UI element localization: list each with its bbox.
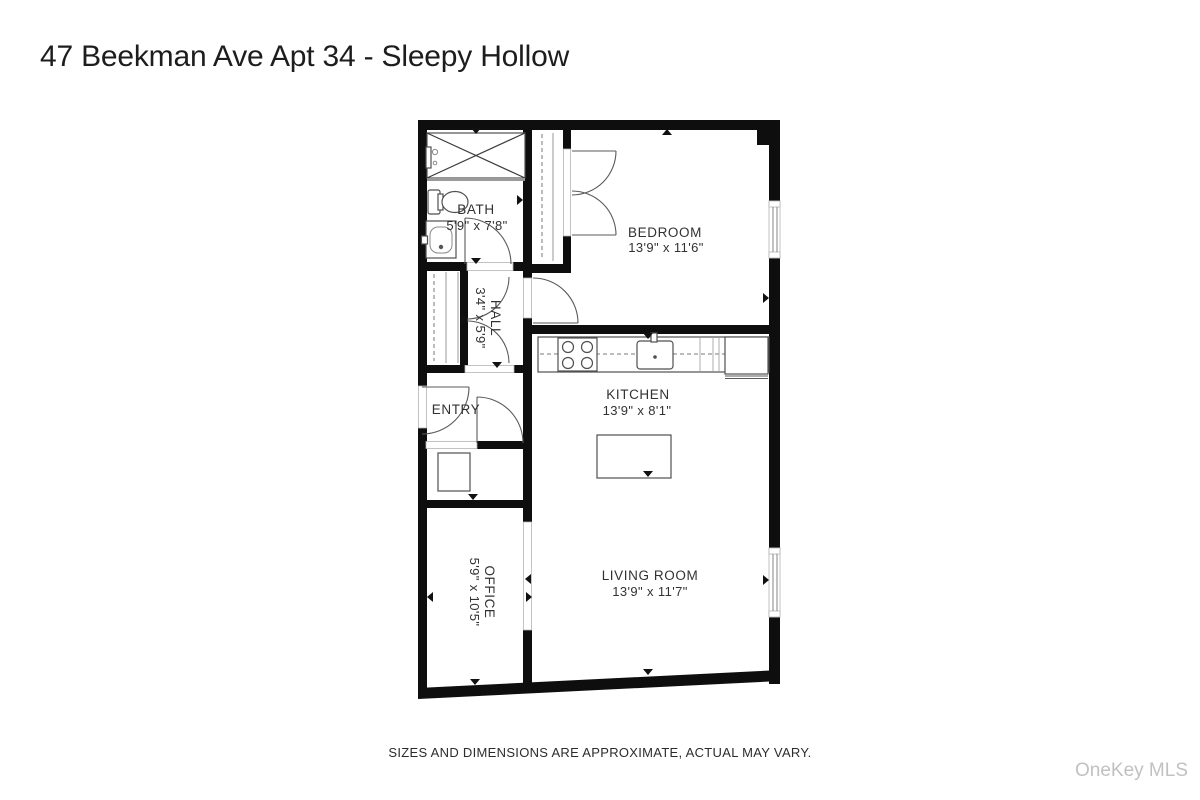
- wall-spine-c: [523, 630, 532, 685]
- faucet: [422, 236, 428, 244]
- window-cap: [769, 548, 780, 554]
- living-room-window: [769, 548, 780, 617]
- office-label: OFFICE: [482, 565, 497, 618]
- bedroom-closet: [542, 133, 553, 261]
- office-label-group: OFFICE 5'9" x 10'5": [467, 558, 497, 627]
- watermark: OneKey MLS: [1075, 760, 1188, 782]
- stove: [558, 338, 597, 371]
- bath-label: BATH: [457, 202, 494, 217]
- wall-closet-right-lower: [563, 236, 571, 264]
- faucet: [651, 333, 657, 342]
- kitchen-dims: 13'9" x 8'1": [603, 403, 672, 418]
- wall-hall-bottom-right: [514, 365, 532, 373]
- hall-dims: 3'4" x 5'9": [473, 287, 488, 348]
- bedroom-door-opening: [524, 278, 532, 318]
- kitchen-island: [597, 435, 671, 478]
- floor-plan-page: 47 Beekman Ave Apt 34 - Sleepy Hollow: [0, 0, 1200, 800]
- shower-curb: [427, 178, 525, 181]
- window-frame: [769, 548, 780, 617]
- window-cap: [769, 252, 780, 258]
- bedroom-window: [769, 201, 780, 258]
- bath-dims: 5'9" x 7'8": [446, 218, 507, 233]
- hall-label: HALL: [488, 300, 503, 336]
- wall-spine-b: [523, 318, 532, 522]
- utility-door-opening: [426, 442, 477, 449]
- window-cap: [769, 201, 780, 207]
- window-frame: [769, 201, 780, 258]
- disclaimer-text: SIZES AND DIMENSIONS ARE APPROXIMATE, AC…: [0, 745, 1200, 760]
- hall-label-group: HALL 3'4" x 5'9": [473, 287, 503, 348]
- wall-right-1: [769, 120, 780, 201]
- wall-utility-bottom: [418, 500, 532, 508]
- utility-door-arc: [477, 397, 523, 443]
- wall-left-lower: [418, 428, 427, 694]
- fridge: [725, 337, 768, 379]
- living-room-label: LIVING ROOM: [602, 568, 699, 583]
- shower-valve: [426, 147, 431, 168]
- bedroom-label: BEDROOM: [628, 225, 702, 240]
- bedroom-door-arc: [533, 278, 578, 323]
- wall-bath-bottom-left: [418, 262, 467, 271]
- wall-bottom-slanted: [418, 670, 780, 699]
- linen-closet: [434, 272, 458, 363]
- closet-door-opening: [564, 149, 571, 236]
- wall-right-2: [769, 258, 780, 548]
- closet-door-arc-top: [572, 151, 616, 195]
- entry-label: ENTRY: [432, 402, 481, 417]
- entry-door-opening: [419, 386, 427, 428]
- living-room-dims: 13'9" x 11'7": [612, 584, 688, 599]
- window-cap: [769, 611, 780, 617]
- office-dims: 5'9" x 10'5": [467, 558, 482, 627]
- wall-closet-right-upper: [563, 129, 571, 149]
- hall-door-opening: [465, 366, 514, 373]
- wall-hall-bottom-left: [418, 365, 465, 373]
- floor-plan: BATH 5'9" x 7'8" BEDROOM 13'9" x 11'6" H…: [0, 0, 1200, 800]
- kitchen-label: KITCHEN: [606, 387, 669, 402]
- closet-door-arc-bottom: [572, 191, 616, 235]
- bedroom-dims: 13'9" x 11'6": [628, 240, 704, 255]
- utility-appliance: [438, 453, 470, 491]
- wall-entry-bottom: [477, 441, 532, 449]
- bath-door-opening: [467, 263, 513, 271]
- wall-bath-bottom-right: [513, 262, 532, 271]
- wall-corner-notch: [757, 130, 769, 145]
- shower: [426, 133, 525, 181]
